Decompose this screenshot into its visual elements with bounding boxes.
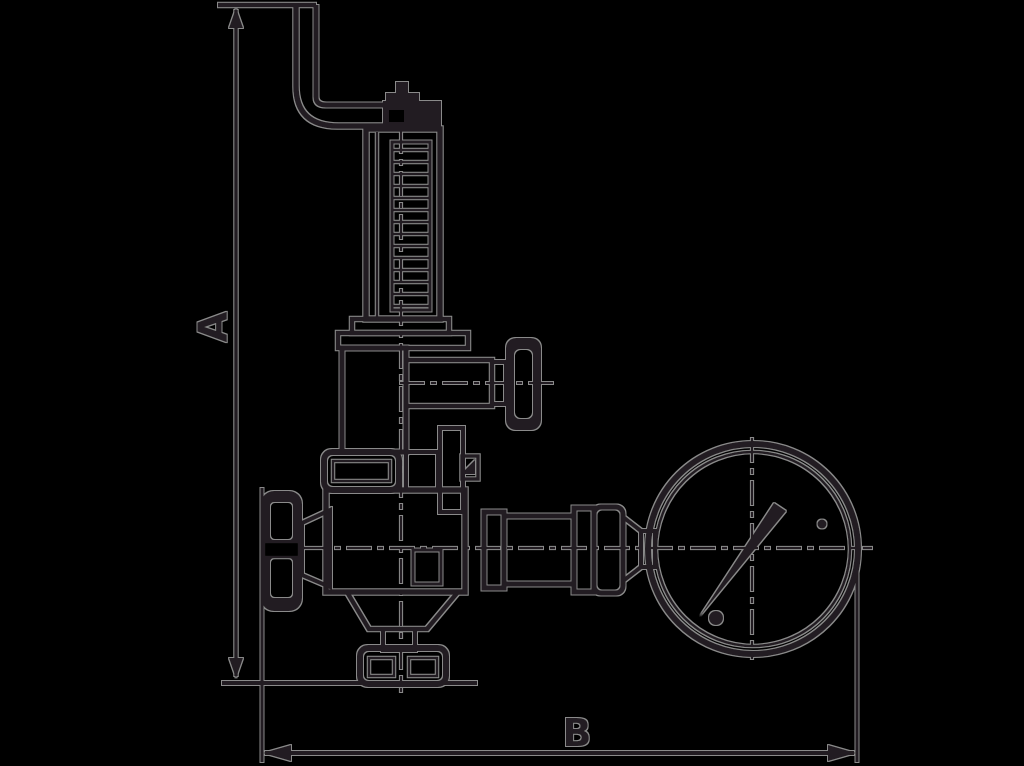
spindle xyxy=(392,142,430,310)
pipe-outer-wall xyxy=(296,5,390,126)
left-handwheel xyxy=(261,491,302,611)
center-lines xyxy=(304,86,872,692)
cap-slot xyxy=(389,110,404,122)
dimension-b-arrow-right xyxy=(828,745,856,761)
adjusting-cap xyxy=(383,82,441,129)
pipe-inner-wall xyxy=(316,5,390,105)
union-ring-1 xyxy=(484,512,504,588)
cap-nub xyxy=(396,82,408,94)
bonnet-neck xyxy=(342,348,406,452)
gauge-piping xyxy=(484,507,655,593)
drawing-canvas: A B xyxy=(0,0,1024,766)
valve-body xyxy=(302,490,465,684)
spindle-threads xyxy=(393,150,429,306)
gauge-needle xyxy=(700,503,786,616)
dimension-a-label: A xyxy=(191,311,237,342)
body-skirt xyxy=(347,592,458,629)
cap-tab xyxy=(386,93,419,102)
lift-lever-pipe xyxy=(296,5,390,126)
spring-bonnet xyxy=(338,129,468,452)
dimension-b-label: B xyxy=(563,711,592,755)
stuffing-box-window xyxy=(333,461,390,481)
gauge-screw-bottom xyxy=(709,611,723,625)
gauge-screw-right xyxy=(818,520,827,529)
stuffing-box xyxy=(324,452,399,490)
bottom-flange xyxy=(360,648,446,684)
union-barrel xyxy=(504,516,574,584)
valve-technical-drawing: A B xyxy=(0,0,1024,766)
dimension-a-arrow-bottom xyxy=(229,658,243,678)
dimension-a-arrow-top xyxy=(229,8,243,28)
union-ring-2 xyxy=(574,508,594,592)
body-window xyxy=(413,550,441,584)
bottom-flange-window-left xyxy=(369,658,394,676)
outlet-riser xyxy=(440,428,463,512)
body-block xyxy=(326,490,465,592)
gland-block xyxy=(406,452,438,490)
dimension-b-arrow-left xyxy=(263,745,291,761)
bottom-flange-window-right xyxy=(409,658,437,676)
union-nut xyxy=(594,507,623,593)
small-handwheel xyxy=(506,338,541,430)
left-handwheel-hub-band xyxy=(264,542,299,557)
